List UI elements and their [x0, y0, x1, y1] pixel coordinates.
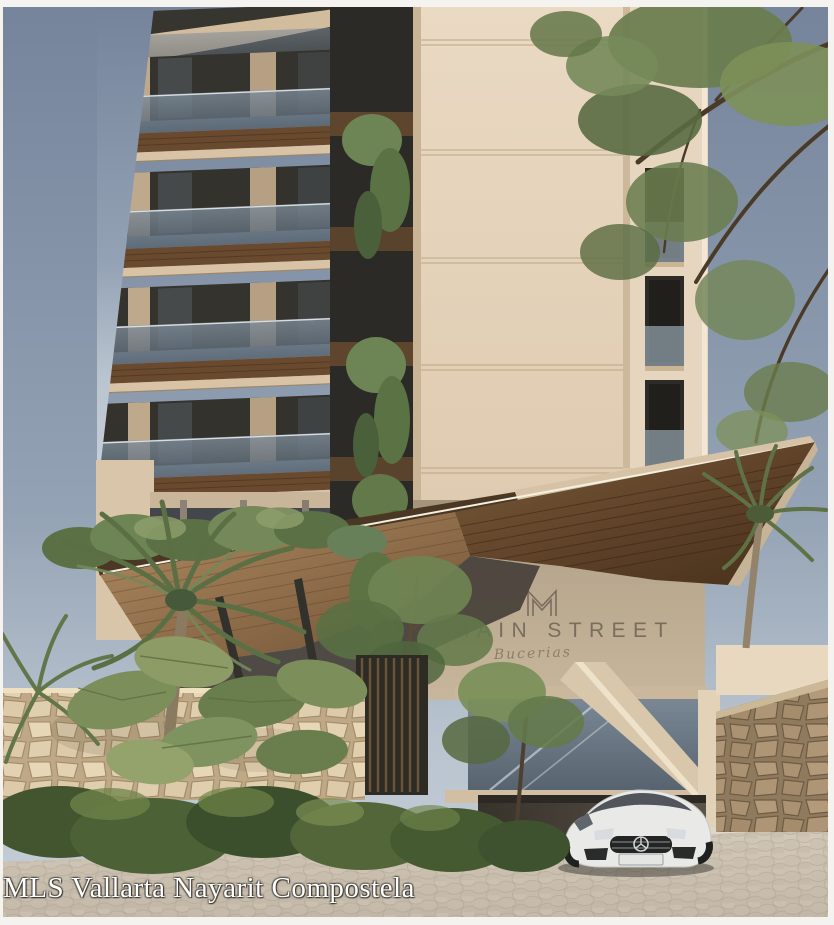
sign-subtitle: Bucerias — [493, 644, 573, 663]
tower-window — [645, 380, 684, 470]
rendering-scene: MAIN STREET Bucerias — [0, 0, 834, 925]
tower-window — [645, 276, 684, 371]
wood-slat-gate — [356, 655, 428, 795]
photo-frame: MAIN STREET Bucerias — [0, 0, 834, 925]
watermark-text: MLS Vallarta Nayarit Compostela — [3, 872, 415, 905]
car-license-plate — [619, 854, 663, 865]
